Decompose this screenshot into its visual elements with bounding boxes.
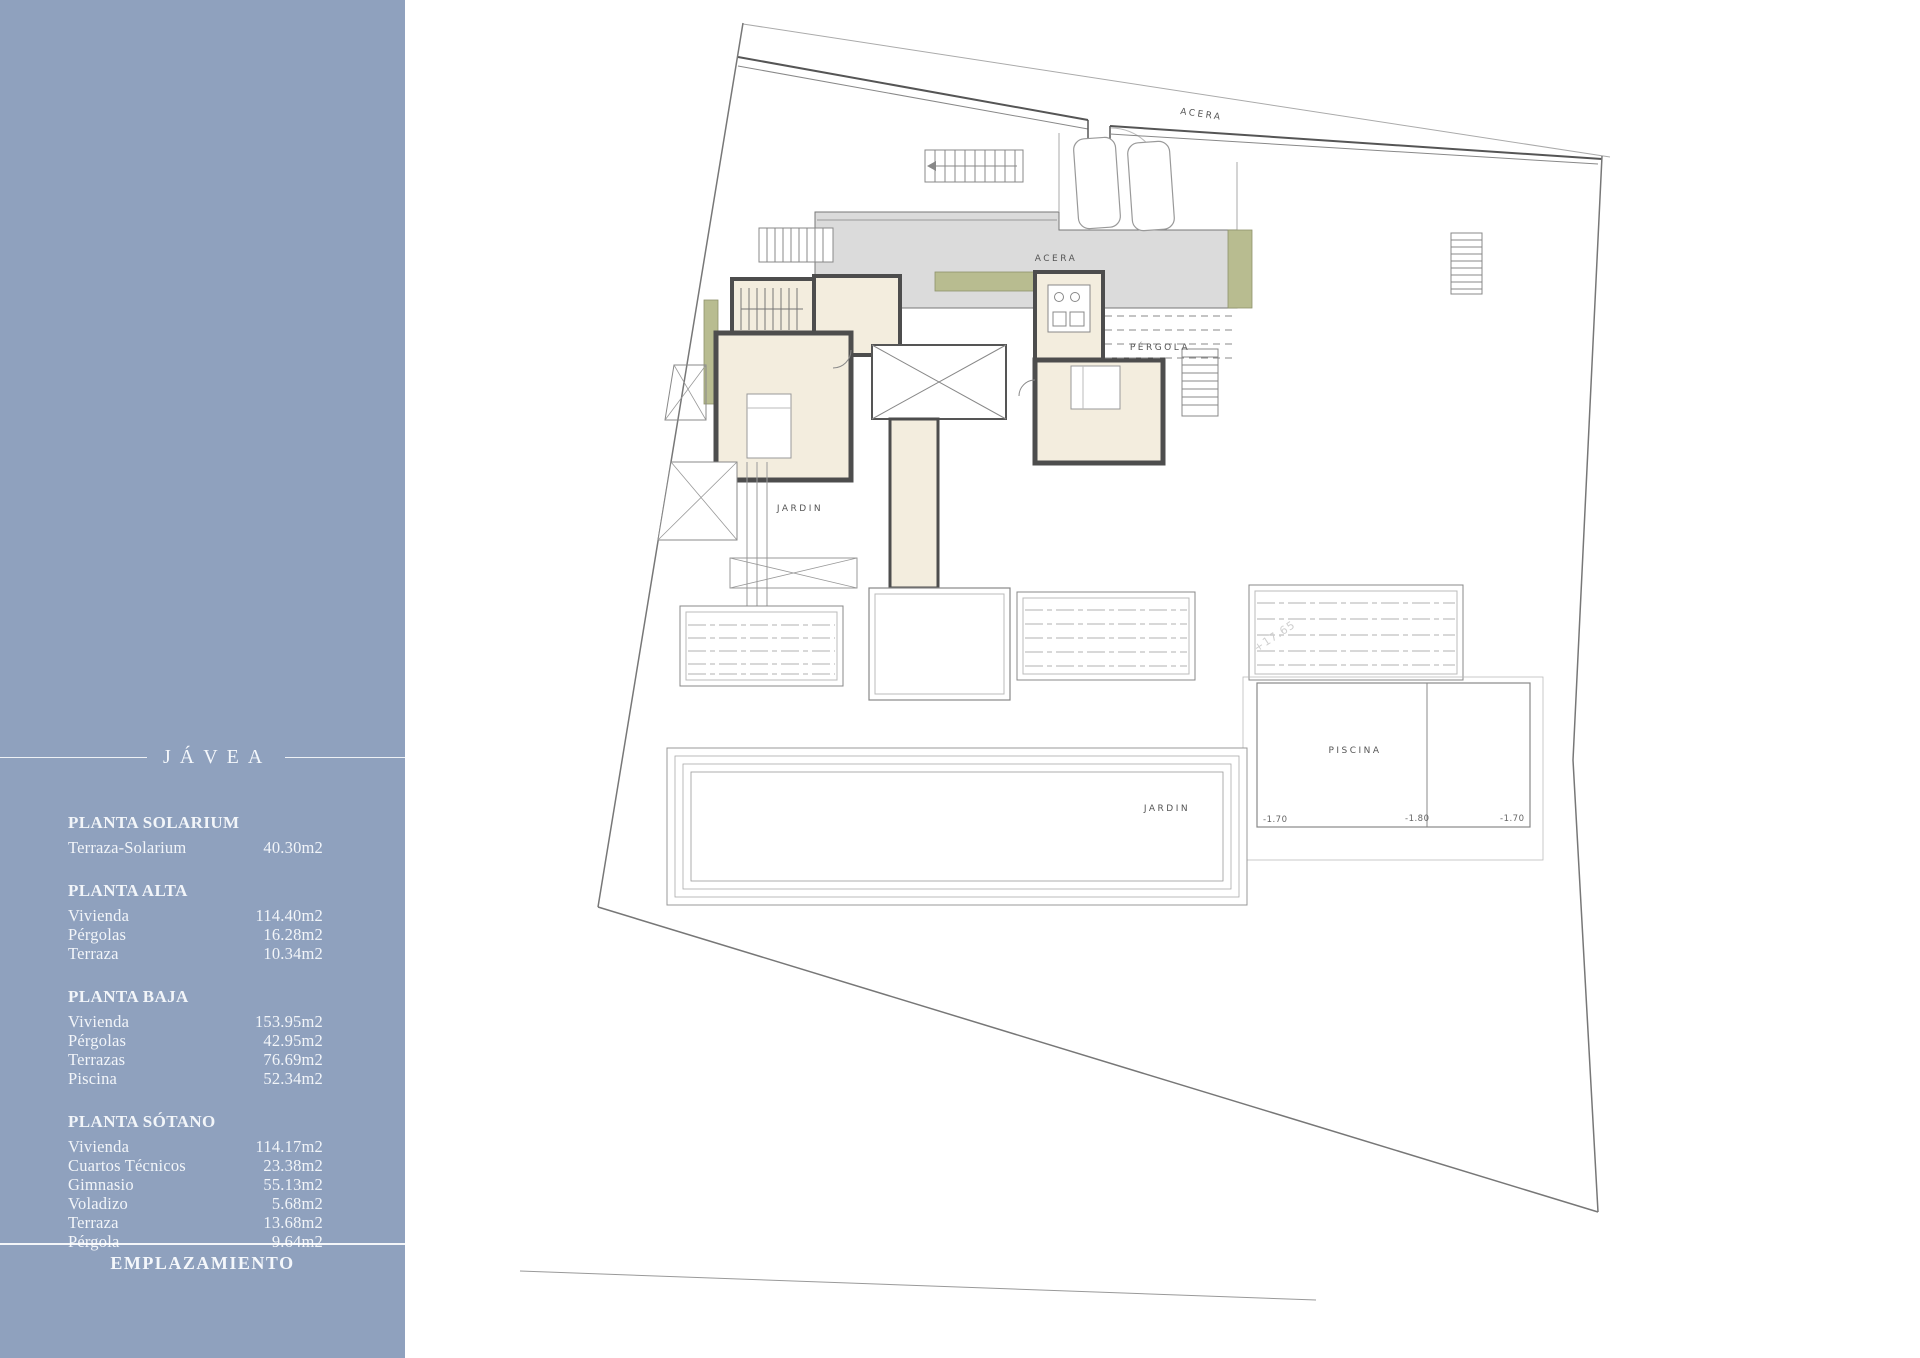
area-row: Terraza 10.34m2 xyxy=(68,944,323,963)
area-value: 40.30m2 xyxy=(263,838,323,857)
area-value: 114.40m2 xyxy=(256,906,323,925)
area-row: Gimnasio 55.13m2 xyxy=(68,1175,323,1194)
area-value: 5.68m2 xyxy=(272,1194,323,1213)
area-row: Terraza-Solarium 40.30m2 xyxy=(68,838,323,857)
drawing-title: EMPLAZAMIENTO xyxy=(0,1253,405,1274)
area-label: Pérgolas xyxy=(68,925,126,944)
parked-cars xyxy=(1073,137,1175,232)
area-value: 114.17m2 xyxy=(256,1137,323,1156)
planter xyxy=(1228,230,1252,308)
area-label: Piscina xyxy=(68,1069,117,1088)
title-rule-right xyxy=(285,757,405,759)
section-planta-solarium: PLANTA SOLARIUM Terraza-Solarium 40.30m2 xyxy=(68,813,323,857)
project-title: JÁVEA xyxy=(163,746,271,769)
area-label: Pérgolas xyxy=(68,1031,126,1050)
area-row: Vivienda 114.17m2 xyxy=(68,1137,323,1156)
acera-terrace-label: ACERA xyxy=(1035,254,1078,264)
bed xyxy=(747,394,791,458)
section-planta-sotano: PLANTA SÓTANO Vivienda 114.17m2 Cuartos … xyxy=(68,1112,323,1251)
house xyxy=(716,272,1163,588)
sidebar: JÁVEA PLANTA SOLARIUM Terraza-Solarium 4… xyxy=(0,0,405,1358)
area-label: Terraza xyxy=(68,1213,119,1232)
stair-right-upper xyxy=(1451,233,1482,294)
area-label: Terrazas xyxy=(68,1050,125,1069)
area-value: 153.95m2 xyxy=(255,1012,323,1031)
pool-level-right: -1.70 xyxy=(1500,814,1525,824)
area-label: Vivienda xyxy=(68,1137,129,1156)
area-label: Pérgola xyxy=(68,1232,120,1251)
pool: PISCINA -1.70 -1.80 -1.70 xyxy=(1243,677,1543,860)
area-value: 55.13m2 xyxy=(263,1175,323,1194)
area-label: Terraza-Solarium xyxy=(68,838,186,857)
section-heading: PLANTA SOLARIUM xyxy=(68,813,323,833)
area-value: 42.95m2 xyxy=(263,1031,323,1050)
area-row: Terrazas 76.69m2 xyxy=(68,1050,323,1069)
deck-left xyxy=(680,606,843,686)
corridor xyxy=(890,419,938,588)
sidebar-divider xyxy=(0,1243,405,1245)
area-label: Vivienda xyxy=(68,906,129,925)
area-value: 52.34m2 xyxy=(263,1069,323,1088)
stair-right-mid xyxy=(1182,349,1218,416)
center-platform xyxy=(869,588,1010,700)
title-rule-left xyxy=(0,757,147,759)
car xyxy=(1127,141,1175,232)
stair-upper-left xyxy=(759,228,833,262)
project-title-row: JÁVEA xyxy=(0,746,405,769)
jardin-bottom-label: JARDIN xyxy=(1143,804,1190,814)
area-row: Piscina 52.34m2 xyxy=(68,1069,323,1088)
lightwell xyxy=(872,345,1006,419)
toilet xyxy=(1053,312,1066,326)
page: JÁVEA PLANTA SOLARIUM Terraza-Solarium 4… xyxy=(0,0,1920,1358)
area-value: 9.64m2 xyxy=(272,1232,323,1251)
area-row: Pérgolas 42.95m2 xyxy=(68,1031,323,1050)
area-label: Gimnasio xyxy=(68,1175,134,1194)
planter xyxy=(935,272,1040,291)
section-planta-alta: PLANTA ALTA Vivienda 114.40m2 Pérgolas 1… xyxy=(68,881,323,963)
sink xyxy=(1071,293,1080,302)
area-value: 13.68m2 xyxy=(263,1213,323,1232)
area-row: Pérgolas 16.28m2 xyxy=(68,925,323,944)
area-label: Voladizo xyxy=(68,1194,128,1213)
piscina-label: PISCINA xyxy=(1328,746,1381,756)
section-planta-baja: PLANTA BAJA Vivienda 153.95m2 Pérgolas 4… xyxy=(68,987,323,1088)
area-value: 23.38m2 xyxy=(263,1156,323,1175)
section-heading: PLANTA SÓTANO xyxy=(68,1112,323,1132)
shower xyxy=(1070,312,1084,326)
site-plan-drawing: ACERA ACERA xyxy=(405,0,1920,1358)
area-row: Vivienda 114.40m2 xyxy=(68,906,323,925)
sink xyxy=(1055,293,1064,302)
pergola-label: PÉRGOLA xyxy=(1130,341,1190,353)
pool-level-mid: -1.80 xyxy=(1405,814,1430,824)
area-value: 10.34m2 xyxy=(263,944,323,963)
area-label: Cuartos Técnicos xyxy=(68,1156,186,1175)
stair-top-center xyxy=(925,150,1023,182)
area-label: Vivienda xyxy=(68,1012,129,1031)
area-row: Pérgola 9.64m2 xyxy=(68,1232,323,1251)
area-row: Voladizo 5.68m2 xyxy=(68,1194,323,1213)
area-row: Terraza 13.68m2 xyxy=(68,1213,323,1232)
bathroom xyxy=(1048,285,1090,332)
site-plan: ACERA ACERA xyxy=(405,0,1920,1358)
area-value: 16.28m2 xyxy=(263,925,323,944)
car xyxy=(1073,137,1121,230)
area-row: Cuartos Técnicos 23.38m2 xyxy=(68,1156,323,1175)
jardin-left-label: JARDIN xyxy=(776,504,823,514)
section-heading: PLANTA BAJA xyxy=(68,987,323,1007)
garden-terraces: JARDIN xyxy=(667,748,1247,905)
pool-level-left: -1.70 xyxy=(1263,815,1288,825)
area-value: 76.69m2 xyxy=(263,1050,323,1069)
area-row: Vivienda 153.95m2 xyxy=(68,1012,323,1031)
bed xyxy=(1071,366,1120,409)
area-label: Terraza xyxy=(68,944,119,963)
deck-center xyxy=(1017,592,1195,680)
acera-top-label: ACERA xyxy=(1180,107,1223,123)
area-table: PLANTA SOLARIUM Terraza-Solarium 40.30m2… xyxy=(68,813,323,1275)
section-heading: PLANTA ALTA xyxy=(68,881,323,901)
